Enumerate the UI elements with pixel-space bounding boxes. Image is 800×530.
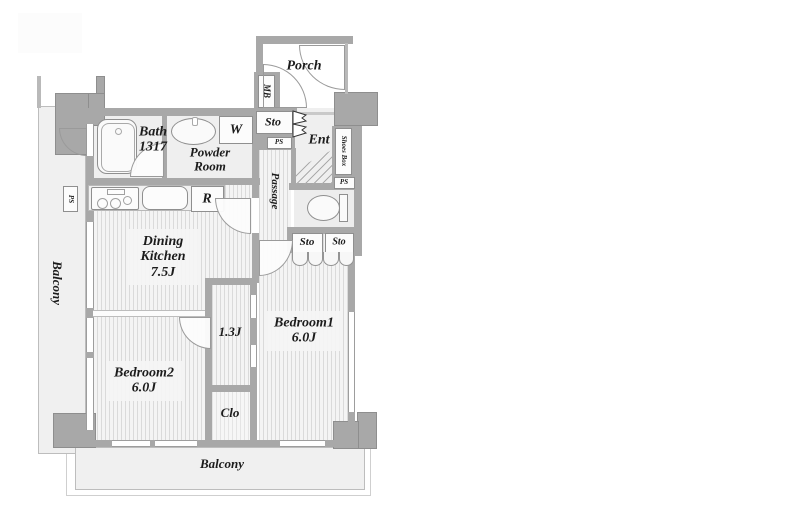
watermark-box (18, 13, 82, 53)
passage-label: Passage (269, 173, 281, 210)
refrigerator-label: R (202, 191, 211, 206)
powder-line1: Powder (190, 145, 230, 160)
corridor-sliding-door-1 (250, 295, 257, 318)
bedroom2-label: Bedroom2 6.0J (114, 366, 174, 397)
stove-burner-2 (110, 198, 121, 209)
corridor-size-label: 1.3J (219, 325, 242, 339)
closet-left-wall (205, 392, 212, 440)
shoes-box-label: Shoes Box (340, 136, 348, 167)
hall-storage-right-label: Sto (332, 237, 345, 248)
floor-plan: Porch MB Sto PS Ent Shoes Box PS Bath 13… (0, 0, 800, 530)
bedroom1-bottom-window (280, 440, 325, 447)
right-wall-upper (354, 183, 362, 256)
dk-bedroom2-partition (93, 310, 205, 317)
porch-label: Porch (287, 58, 322, 73)
pier-top-left-tab (96, 76, 105, 94)
porch-left-wall (256, 36, 263, 77)
dk-window (86, 222, 94, 308)
bedroom1-size: 6.0J (292, 331, 317, 346)
bedroom2-window (86, 318, 94, 430)
porch-right-wall (345, 43, 348, 94)
folding-door-scallop-1 (292, 252, 308, 266)
hall-storage-left-label: Sto (300, 236, 315, 248)
stove-grill (107, 189, 125, 195)
bathtub-drain (115, 128, 122, 135)
wall-stub-top-left (37, 76, 41, 108)
entrance-label: Ent (308, 132, 329, 147)
stove-burner-1 (97, 198, 108, 209)
bedroom1-right-window (348, 312, 355, 412)
pipe-space-shoes-label: PS (340, 179, 348, 187)
bath-size: 1317 (139, 140, 167, 155)
pipe-space-kitchen-label: PS (67, 195, 75, 203)
bedroom2-name: Bedroom2 (114, 366, 174, 381)
dk-size: 7.5J (151, 265, 176, 280)
powder-line2: Room (194, 159, 226, 174)
bedroom2-bottom-window-1 (112, 440, 150, 447)
pier-top-right (334, 92, 378, 126)
folding-door-scallop-4 (339, 252, 354, 266)
dk-line1: Dining (143, 234, 183, 249)
toilet-tank (339, 194, 348, 222)
powder-sink-faucet (192, 117, 198, 126)
meter-box-label: MB (262, 84, 272, 98)
bathrow-bottom-wall (86, 178, 260, 185)
washer-label: W (230, 122, 242, 137)
powder-room-label: Powder Room (190, 146, 230, 175)
closet-label: Clo (221, 406, 240, 420)
folding-door-scallop-2 (308, 252, 323, 266)
entry-bifold-door-icon (292, 110, 308, 138)
bath-label: Bath 1317 (139, 125, 167, 156)
pier-bottom-right-a (357, 412, 377, 449)
folding-door-scallop-3 (323, 252, 339, 266)
entry-storage-label: Sto (265, 115, 281, 128)
stove (91, 187, 139, 210)
porch-top-wall (256, 36, 353, 44)
powder-sink (171, 118, 216, 145)
kitchen-sink (142, 186, 188, 210)
bath-name: Bath (139, 125, 167, 140)
passage-left-wall-lower (252, 233, 259, 283)
bedroom2-window-mullion (86, 352, 94, 358)
balcony-left-label: Balcony (49, 261, 65, 305)
bedroom1-name: Bedroom1 (274, 316, 334, 331)
corridor-sliding-door-2 (250, 345, 257, 367)
toilet-bowl (307, 195, 340, 221)
dk-line2: Kitchen (140, 249, 185, 264)
pipe-space-entry-label: PS (275, 139, 283, 147)
corridor-right-wall-a (250, 278, 257, 295)
corridor-right-wall-c (250, 367, 257, 440)
closet-top-wall (205, 385, 257, 392)
bath-window (86, 124, 94, 156)
bedroom1-label: Bedroom1 6.0J (274, 316, 334, 347)
balcony-bottom-label: Balcony (200, 457, 244, 471)
bedroom2-size: 6.0J (132, 381, 157, 396)
stove-burner-3 (123, 196, 132, 205)
corridor-right-wall-b (250, 318, 257, 345)
bedroom2-bottom-window-2 (155, 440, 197, 447)
dining-kitchen-label: Dining Kitchen 7.5J (140, 234, 185, 280)
